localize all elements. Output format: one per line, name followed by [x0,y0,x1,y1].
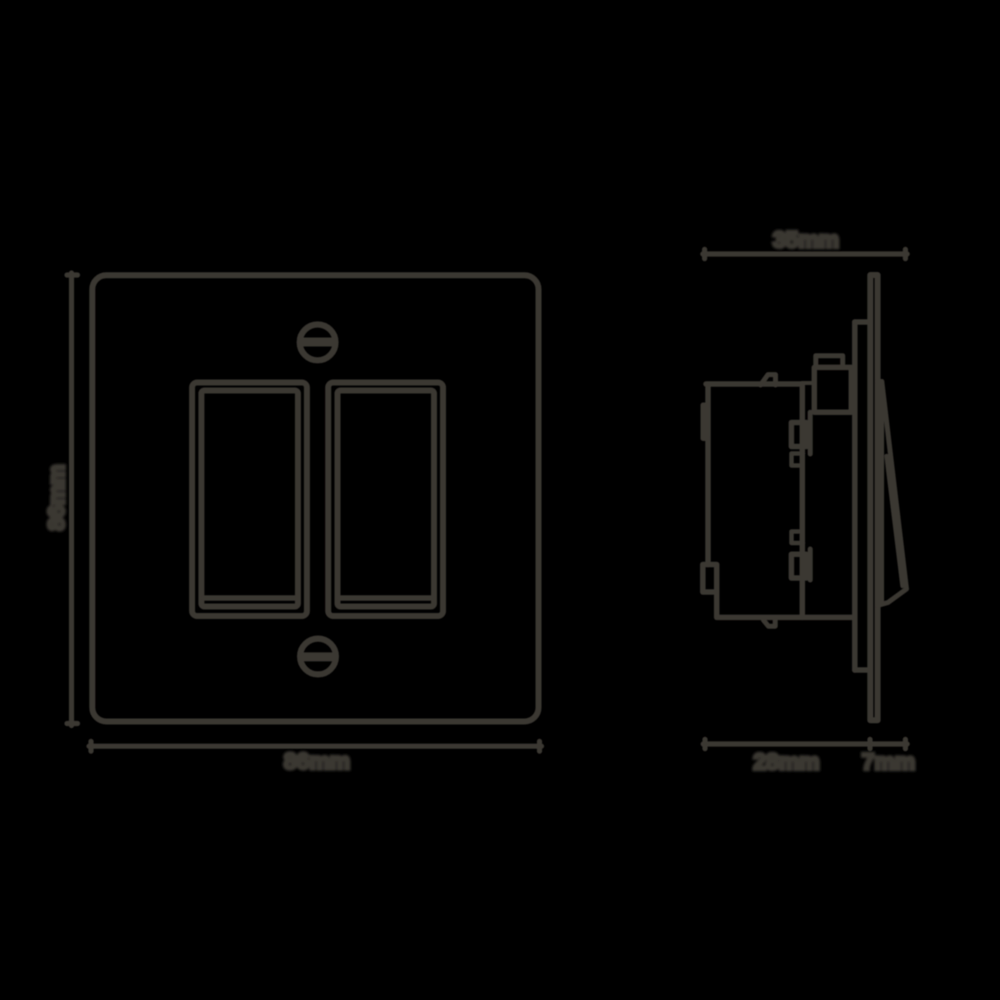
svg-text:86mm: 86mm [284,748,350,774]
svg-text:28mm: 28mm [753,749,819,775]
svg-text:7mm: 7mm [862,749,916,775]
svg-text:86mm: 86mm [43,464,69,530]
svg-text:35mm: 35mm [773,227,839,253]
